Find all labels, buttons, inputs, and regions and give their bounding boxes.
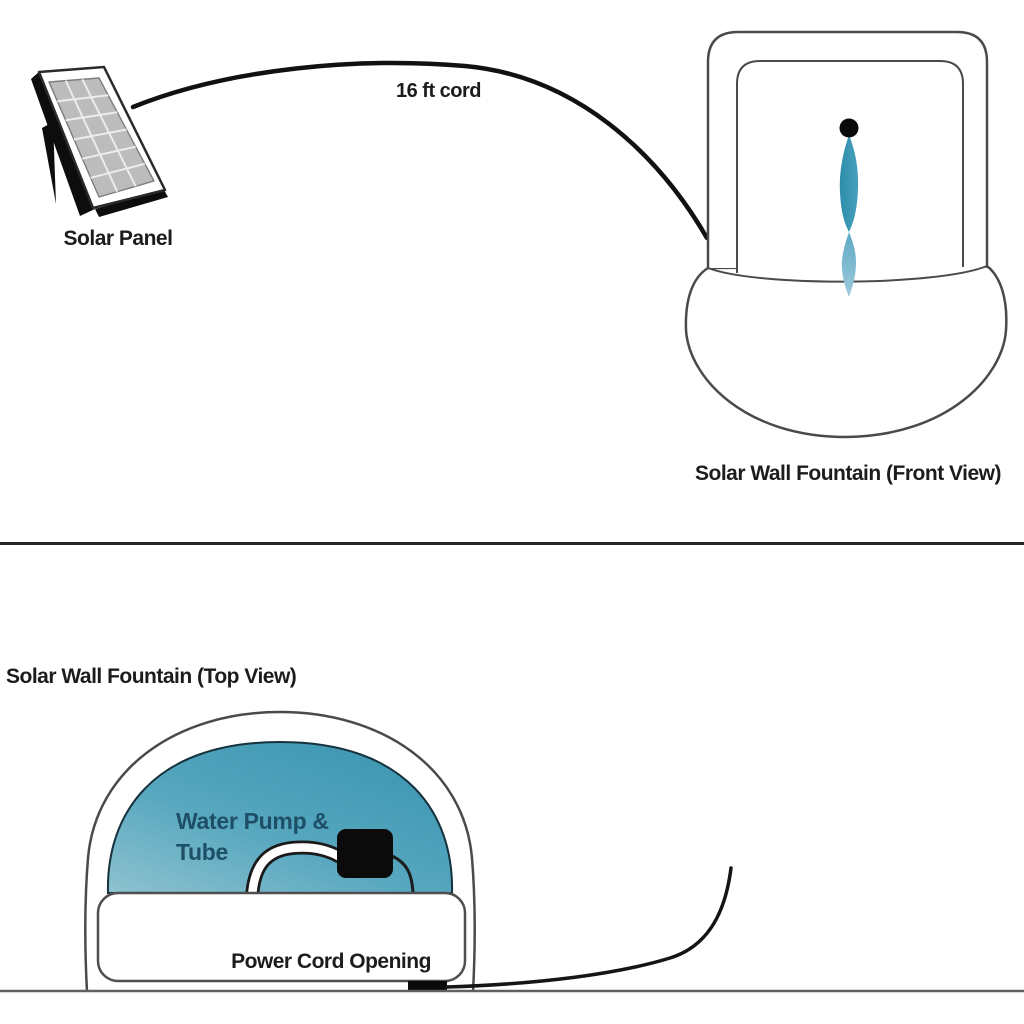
pump-label-line1: Water Pump &	[176, 806, 329, 837]
section-divider-line	[0, 542, 1024, 545]
solar-panel-illustration	[31, 67, 168, 217]
power-cord-opening-label: Power Cord Opening	[218, 950, 444, 974]
fountain-basin	[686, 266, 1006, 437]
water-spout-dot	[840, 119, 859, 138]
wall-fountain-front-view	[686, 32, 1006, 437]
solar-panel-label: Solar Panel	[58, 227, 178, 251]
front-view-label: Solar Wall Fountain (Front View)	[678, 462, 1018, 486]
water-pump-block	[337, 829, 393, 878]
diagram-canvas	[0, 0, 1024, 1024]
top-view-label: Solar Wall Fountain (Top View)	[6, 665, 296, 689]
loose-power-cord	[447, 868, 731, 987]
pump-label-line2: Tube	[176, 837, 228, 868]
cord-length-label: 16 ft cord	[386, 80, 491, 103]
